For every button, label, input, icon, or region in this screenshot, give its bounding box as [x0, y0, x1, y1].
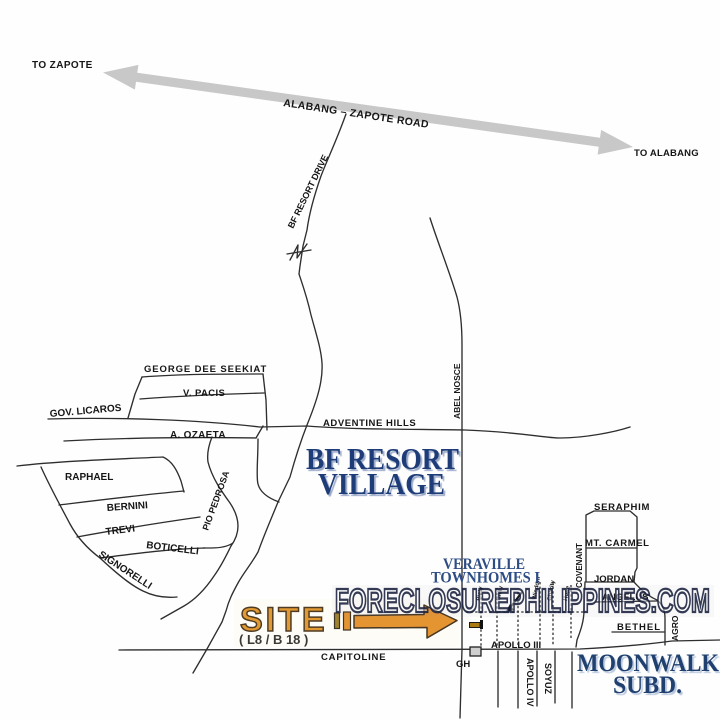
svg-text:APOLLO IV: APOLLO IV — [525, 658, 535, 707]
svg-text:APOLLO III: APOLLO III — [491, 640, 541, 651]
svg-text:SOYUZ: SOYUZ — [543, 663, 553, 695]
svg-text:GEORGE DEE SEEKIAT: GEORGE DEE SEEKIAT — [144, 364, 267, 375]
svg-text:VILLAGE: VILLAGE — [318, 466, 445, 501]
svg-text:MT. CARMEL: MT. CARMEL — [585, 538, 650, 549]
svg-text:RAPHAEL: RAPHAEL — [65, 472, 113, 483]
svg-text:ABEL NOSCE: ABEL NOSCE — [452, 363, 462, 419]
svg-text:ADVENTINE HILLS: ADVENTINE HILLS — [323, 418, 416, 429]
svg-text:SUBD.: SUBD. — [613, 670, 682, 699]
svg-text:SERAPHIM: SERAPHIM — [594, 502, 650, 513]
svg-text:TO ALABANG: TO ALABANG — [634, 148, 699, 159]
svg-text:BETHEL: BETHEL — [617, 622, 661, 633]
svg-text:TO ZAPOTE: TO ZAPOTE — [32, 60, 93, 71]
svg-text:A. OZAETA: A. OZAETA — [170, 430, 226, 441]
svg-text:CAPITOLINE: CAPITOLINE — [321, 652, 386, 663]
svg-text:FORECLOSUREPHILIPPINES.COM: FORECLOSUREPHILIPPINES.COM — [335, 582, 710, 619]
svg-text:GH: GH — [456, 659, 470, 670]
svg-text:V. PACIS: V. PACIS — [183, 388, 225, 399]
